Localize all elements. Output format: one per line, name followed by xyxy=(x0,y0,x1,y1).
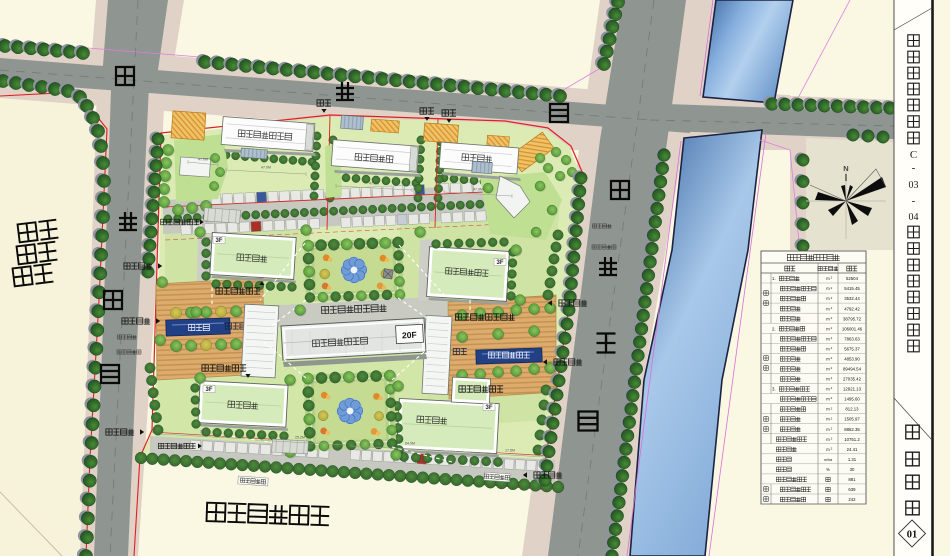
svg-text:4853.90: 4853.90 xyxy=(844,357,860,362)
svg-text:64.9M: 64.9M xyxy=(405,442,415,446)
svg-text:m: m xyxy=(826,357,830,362)
svg-text:m/ha: m/ha xyxy=(824,458,832,462)
svg-text:27035.42: 27035.42 xyxy=(843,377,862,382)
svg-text:8862.35: 8862.35 xyxy=(844,427,860,432)
svg-text:5415.45: 5415.45 xyxy=(844,286,860,291)
svg-text:3F: 3F xyxy=(205,387,212,393)
svg-text:20F: 20F xyxy=(402,330,417,341)
svg-text:-: - xyxy=(912,195,916,207)
svg-text:3532.44: 3532.44 xyxy=(844,296,860,301)
svg-text:17.6M: 17.6M xyxy=(505,449,515,453)
svg-text:m: m xyxy=(826,387,830,392)
svg-text:-: - xyxy=(912,162,916,174)
svg-text:30: 30 xyxy=(850,467,855,472)
svg-text:%: % xyxy=(826,467,830,472)
svg-text:38795.72: 38795.72 xyxy=(843,316,862,321)
svg-text:3F: 3F xyxy=(215,238,222,244)
svg-text:N: N xyxy=(843,164,848,173)
svg-text:04: 04 xyxy=(909,212,919,223)
svg-text:m: m xyxy=(826,397,830,402)
svg-text:89494.54: 89494.54 xyxy=(843,367,862,372)
svg-text:47.0M: 47.0M xyxy=(369,182,379,186)
svg-text:25.2M: 25.2M xyxy=(295,436,305,440)
svg-text:1.: 1. xyxy=(772,276,776,281)
svg-text:12921.13: 12921.13 xyxy=(843,387,862,392)
svg-text:2.: 2. xyxy=(772,326,776,331)
svg-text:881: 881 xyxy=(848,477,856,482)
svg-text:5675.37: 5675.37 xyxy=(844,346,860,351)
svg-text:m: m xyxy=(826,276,830,281)
svg-text:25.3M: 25.3M xyxy=(200,430,210,434)
svg-text:242: 242 xyxy=(848,497,856,502)
svg-text:3F: 3F xyxy=(496,260,503,266)
svg-text:m: m xyxy=(826,437,830,442)
svg-text:47.0M: 47.0M xyxy=(473,188,483,192)
svg-text:47.0M: 47.0M xyxy=(198,158,208,162)
svg-text:3F: 3F xyxy=(485,405,492,411)
svg-text:01: 01 xyxy=(907,530,918,541)
svg-text:639: 639 xyxy=(848,487,856,492)
svg-text:812.13: 812.13 xyxy=(845,407,859,412)
svg-text:m: m xyxy=(826,336,830,341)
svg-text:24.41: 24.41 xyxy=(847,447,858,452)
svg-text:10751.2: 10751.2 xyxy=(844,437,860,442)
svg-text:m: m xyxy=(826,447,830,452)
svg-text:m: m xyxy=(826,367,830,372)
svg-text:m: m xyxy=(826,407,830,412)
svg-text:106001.46: 106001.46 xyxy=(842,326,863,331)
svg-text:1495.60: 1495.60 xyxy=(844,397,860,402)
svg-text:m: m xyxy=(826,296,830,301)
svg-text:m: m xyxy=(826,316,830,321)
svg-text:m: m xyxy=(826,346,830,351)
svg-text:47.0M: 47.0M xyxy=(261,166,271,170)
svg-text:52504: 52504 xyxy=(846,276,859,281)
svg-text:4792.42: 4792.42 xyxy=(844,306,860,311)
svg-text:1.31: 1.31 xyxy=(848,457,857,462)
svg-text:m: m xyxy=(826,286,830,291)
svg-text:m: m xyxy=(826,417,830,422)
svg-text:m: m xyxy=(826,326,830,331)
svg-text:C: C xyxy=(910,149,917,161)
svg-text:m: m xyxy=(826,427,830,432)
svg-text:1505.97: 1505.97 xyxy=(844,417,860,422)
svg-text:m: m xyxy=(826,377,830,382)
svg-text:3.: 3. xyxy=(772,387,776,392)
svg-text:7863.63: 7863.63 xyxy=(844,336,860,341)
svg-text:m: m xyxy=(826,306,830,311)
svg-text:03: 03 xyxy=(909,180,919,191)
